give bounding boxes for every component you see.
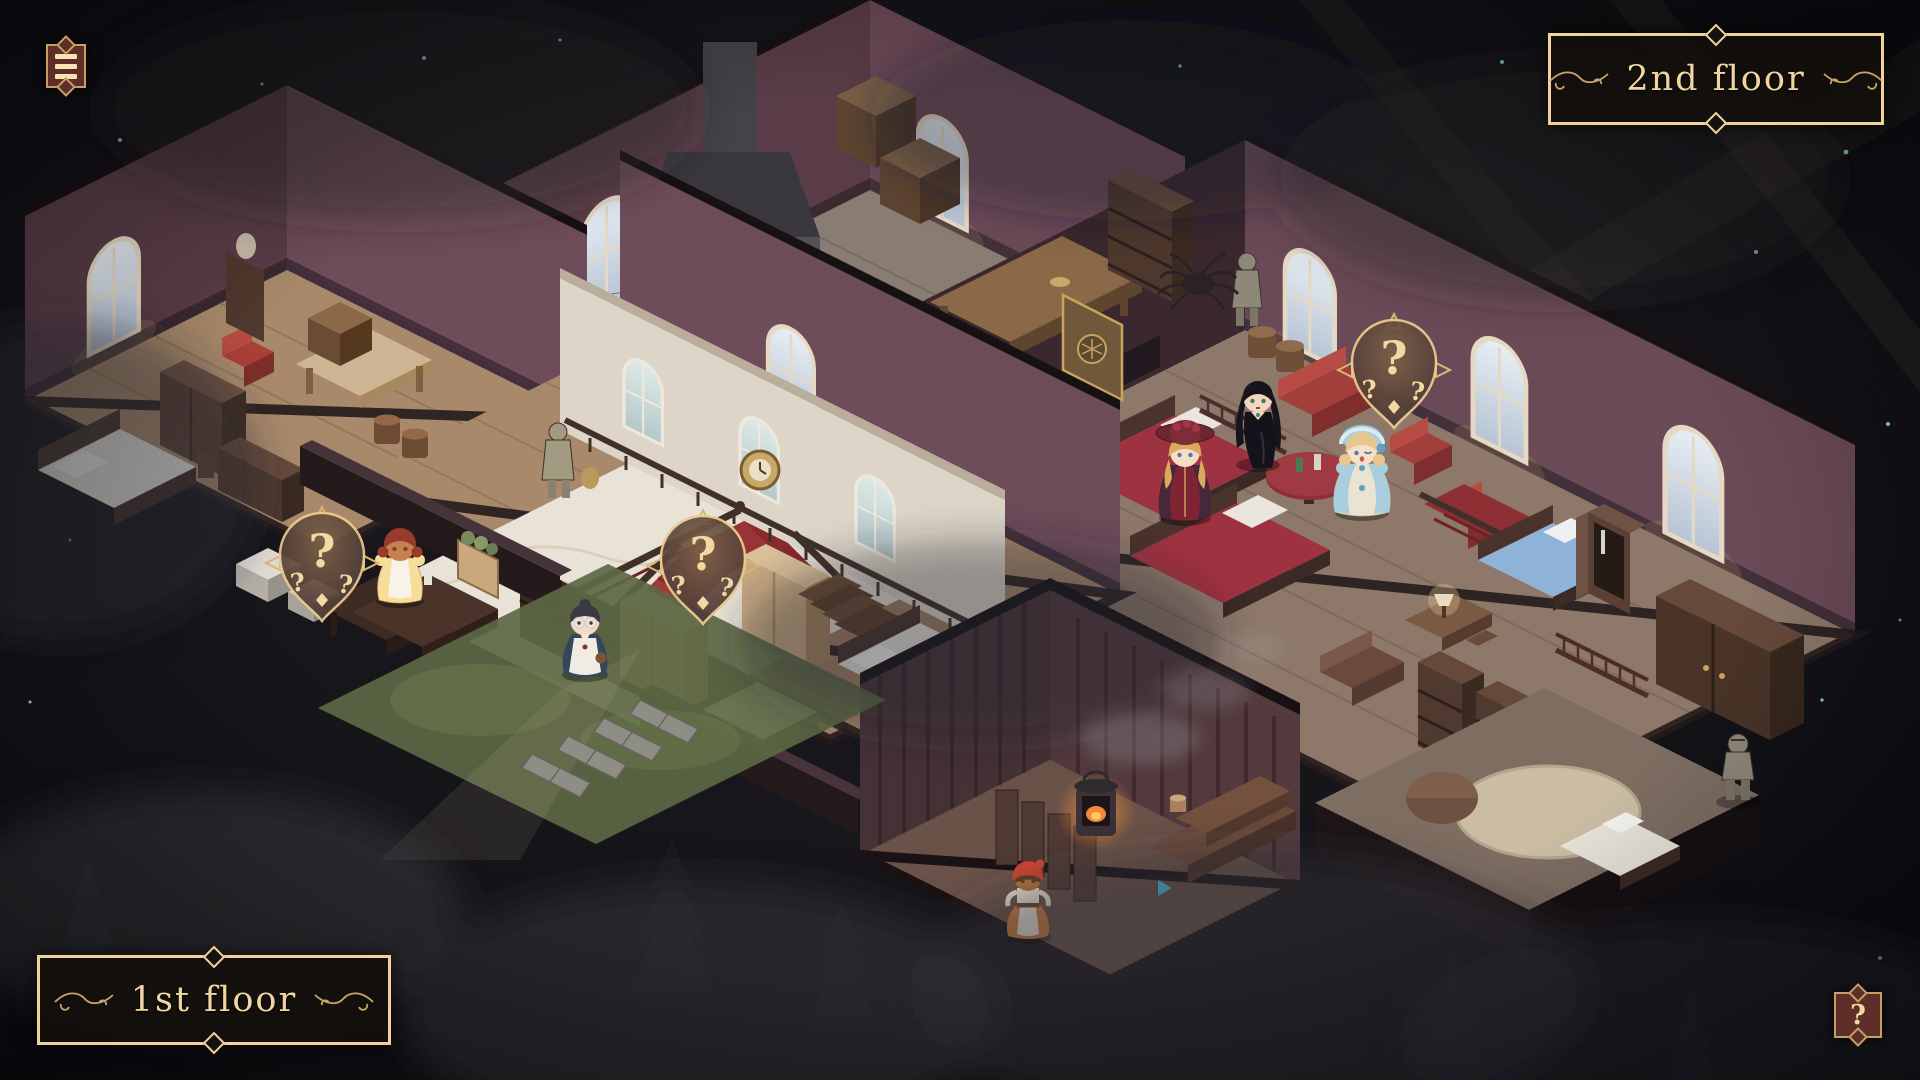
- second-floor-label: 2nd floor: [1548, 33, 1884, 125]
- help-button[interactable]: ?: [1834, 992, 1882, 1038]
- mansion-scene: ? ? ?: [0, 0, 1920, 1080]
- help-question-icon: ?: [1850, 1002, 1866, 1029]
- vine-flourish-icon: [53, 987, 117, 1013]
- vignette: [0, 0, 1920, 1080]
- vine-flourish-icon: [311, 987, 375, 1013]
- vine-flourish-icon: [1548, 66, 1612, 92]
- menu-button[interactable]: [46, 44, 86, 88]
- first-floor-label-text: 1st floor: [131, 980, 297, 1020]
- vine-flourish-icon: [1820, 66, 1884, 92]
- second-floor-label-text: 2nd floor: [1626, 59, 1805, 99]
- first-floor-label: 1st floor: [37, 955, 391, 1045]
